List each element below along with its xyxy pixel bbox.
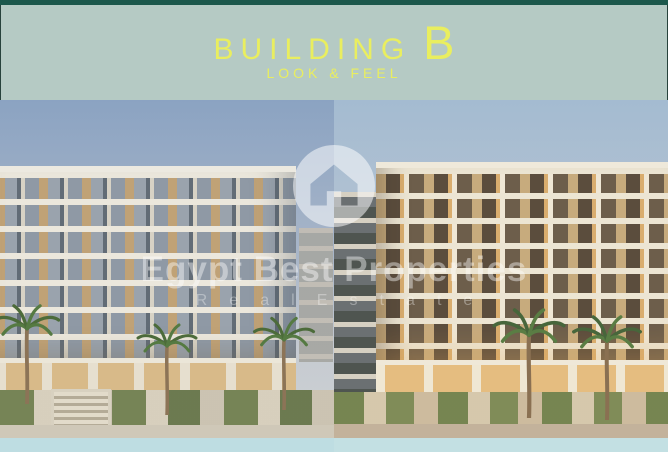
garden-stairs: [54, 392, 108, 426]
render-panel-right: [334, 100, 668, 452]
pavement-left: [0, 425, 334, 438]
slide-header: BUILDING B LOOK & FEEL: [0, 5, 668, 100]
pavement-right: [334, 424, 668, 438]
page-subtitle: LOOK & FEEL: [0, 65, 668, 81]
pool-strip-left: [0, 438, 334, 452]
render-comparison-area: [0, 100, 668, 452]
title-building-word: BUILDING: [213, 33, 411, 67]
pool-strip-right: [334, 438, 668, 452]
title-letter-b: B: [423, 15, 454, 70]
palm-tree-icon: [492, 286, 566, 418]
palm-tree-icon: [135, 305, 199, 415]
side-building-right: [334, 192, 376, 396]
palm-tree-icon: [572, 294, 642, 420]
page-title: BUILDING B: [0, 15, 668, 63]
render-panel-left: [0, 100, 334, 452]
palm-tree-icon: [252, 298, 316, 410]
building-b-look-and-feel-slide: BUILDING B LOOK & FEEL: [0, 0, 668, 452]
palm-tree-icon: [0, 284, 62, 404]
